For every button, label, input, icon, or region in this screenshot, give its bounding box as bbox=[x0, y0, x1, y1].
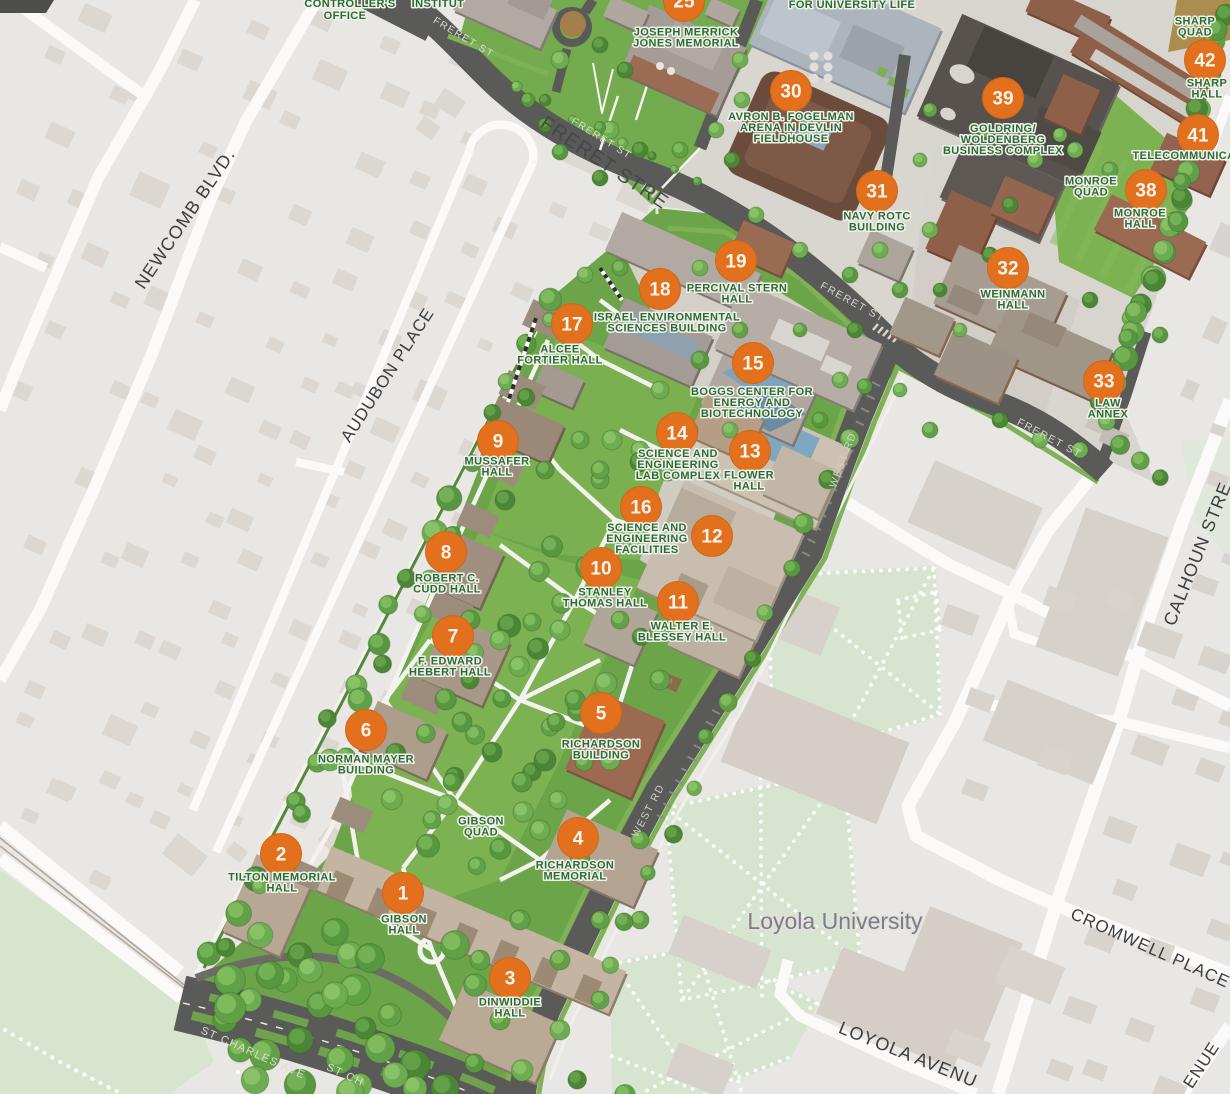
svg-text:39: 39 bbox=[992, 89, 1013, 110]
svg-text:8: 8 bbox=[441, 543, 452, 564]
svg-text:41: 41 bbox=[1187, 126, 1209, 147]
svg-text:Loyola University: Loyola University bbox=[747, 908, 923, 934]
svg-text:10: 10 bbox=[590, 559, 611, 580]
svg-text:ISRAEL ENVIRONMENTALSCIENCES B: ISRAEL ENVIRONMENTALSCIENCES BUILDING bbox=[594, 312, 740, 335]
svg-text:17: 17 bbox=[561, 315, 582, 336]
svg-text:7: 7 bbox=[448, 627, 459, 648]
svg-text:6: 6 bbox=[361, 721, 372, 742]
svg-text:25: 25 bbox=[673, 0, 695, 13]
svg-text:RICHARDSONBUILDING: RICHARDSONBUILDING bbox=[562, 739, 641, 762]
svg-text:FOR UNIVERSITY LIFE: FOR UNIVERSITY LIFE bbox=[789, 0, 916, 11]
svg-text:GIBSONQUAD: GIBSONQUAD bbox=[458, 816, 504, 839]
svg-text:16: 16 bbox=[630, 498, 651, 519]
svg-text:INSTITUT: INSTITUT bbox=[412, 0, 465, 10]
svg-text:42: 42 bbox=[1194, 51, 1215, 72]
svg-text:OFFICE: OFFICE bbox=[324, 10, 367, 22]
svg-text:5: 5 bbox=[596, 704, 607, 725]
svg-text:NAVY ROTCBUILDING: NAVY ROTCBUILDING bbox=[843, 211, 910, 234]
svg-text:1: 1 bbox=[398, 884, 409, 905]
svg-text:3: 3 bbox=[505, 969, 516, 990]
svg-text:4: 4 bbox=[573, 829, 584, 850]
svg-text:SCIENCE ANDENGINEERINGLAB COMP: SCIENCE ANDENGINEERINGLAB COMPLEX bbox=[636, 448, 721, 482]
svg-text:2: 2 bbox=[276, 845, 287, 866]
svg-text:19: 19 bbox=[725, 252, 746, 273]
svg-text:32: 32 bbox=[997, 259, 1018, 280]
svg-text:11: 11 bbox=[668, 593, 689, 614]
svg-text:RICHARDSONMEMORIAL: RICHARDSONMEMORIAL bbox=[536, 860, 615, 883]
svg-text:33: 33 bbox=[1093, 372, 1114, 393]
svg-text:TELECOMMUNICA: TELECOMMUNICA bbox=[1133, 150, 1230, 162]
svg-text:15: 15 bbox=[742, 354, 764, 375]
svg-text:JOSEPH MERRICKJONES MEMORIAL: JOSEPH MERRICKJONES MEMORIAL bbox=[633, 27, 739, 50]
svg-text:9: 9 bbox=[493, 432, 504, 453]
svg-text:38: 38 bbox=[1135, 181, 1156, 202]
svg-text:SCIENCE ANDENGINEERINGFACILITI: SCIENCE ANDENGINEERINGFACILITIES bbox=[606, 522, 687, 556]
svg-text:31: 31 bbox=[866, 182, 888, 203]
svg-text:30: 30 bbox=[780, 82, 801, 103]
svg-text:13: 13 bbox=[739, 442, 760, 463]
svg-text:SHARPHALL: SHARPHALL bbox=[1187, 78, 1228, 101]
svg-text:ROBERT C.CUDD HALL: ROBERT C.CUDD HALL bbox=[413, 573, 481, 596]
svg-text:WALTER E.BLESSEY HALL: WALTER E.BLESSEY HALL bbox=[638, 621, 726, 644]
svg-text:12: 12 bbox=[701, 527, 722, 548]
svg-text:SHARPQUAD: SHARPQUAD bbox=[1175, 16, 1216, 39]
svg-text:18: 18 bbox=[649, 280, 670, 301]
svg-text:CONTROLLER'S: CONTROLLER'S bbox=[304, 0, 395, 10]
svg-text:14: 14 bbox=[666, 424, 688, 445]
svg-text:F. EDWARDHEBERT HALL: F. EDWARDHEBERT HALL bbox=[409, 656, 491, 679]
